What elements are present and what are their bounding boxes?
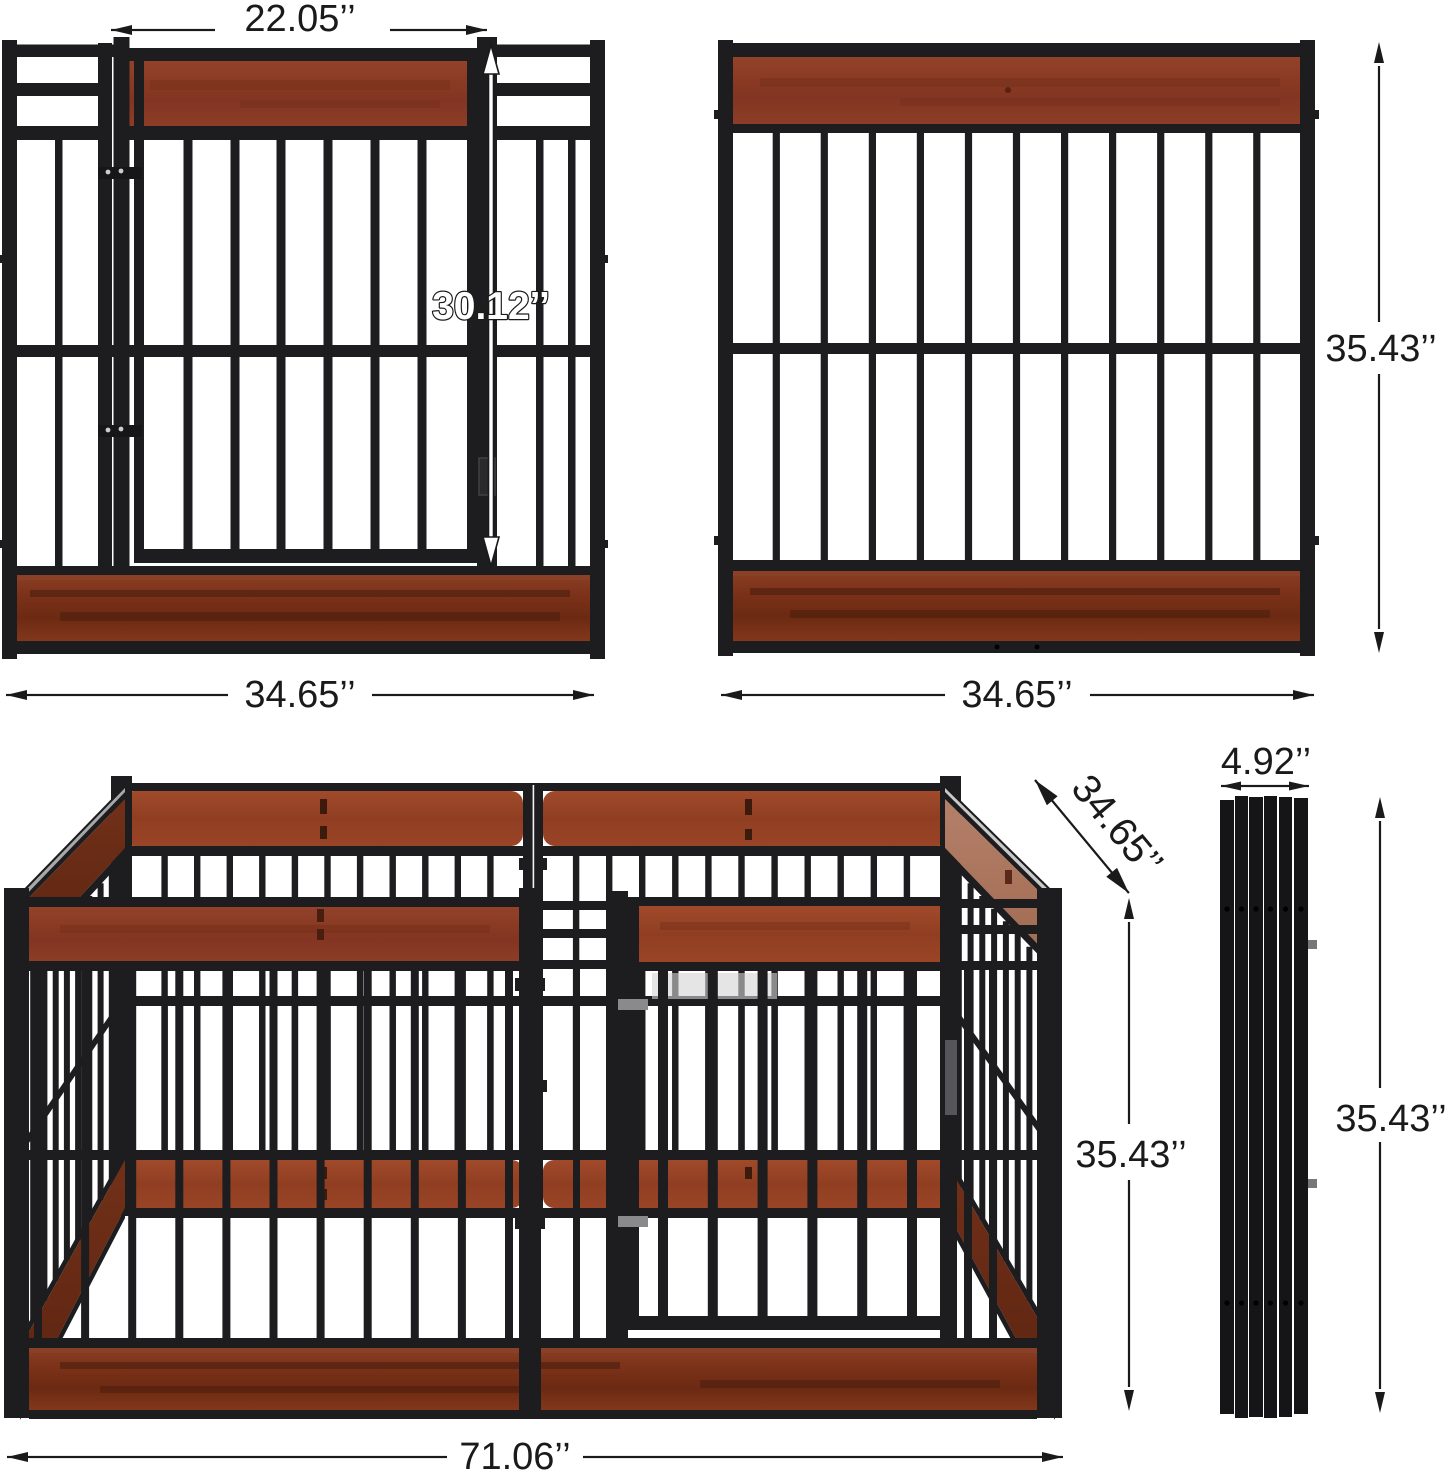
svg-text:35.43’’: 35.43’’: [1325, 328, 1436, 370]
svg-text:34.65’’: 34.65’’: [961, 674, 1072, 716]
svg-text:35.43’’: 35.43’’: [1075, 1134, 1186, 1176]
svg-text:71.06’’: 71.06’’: [459, 1436, 570, 1474]
svg-text:35.43’’: 35.43’’: [1335, 1098, 1445, 1140]
svg-text:4.92’’: 4.92’’: [1221, 741, 1311, 783]
svg-text:22.05’’: 22.05’’: [244, 0, 355, 40]
svg-text:30.12’’: 30.12’’: [432, 285, 550, 328]
svg-text:34.65’’: 34.65’’: [244, 674, 355, 716]
